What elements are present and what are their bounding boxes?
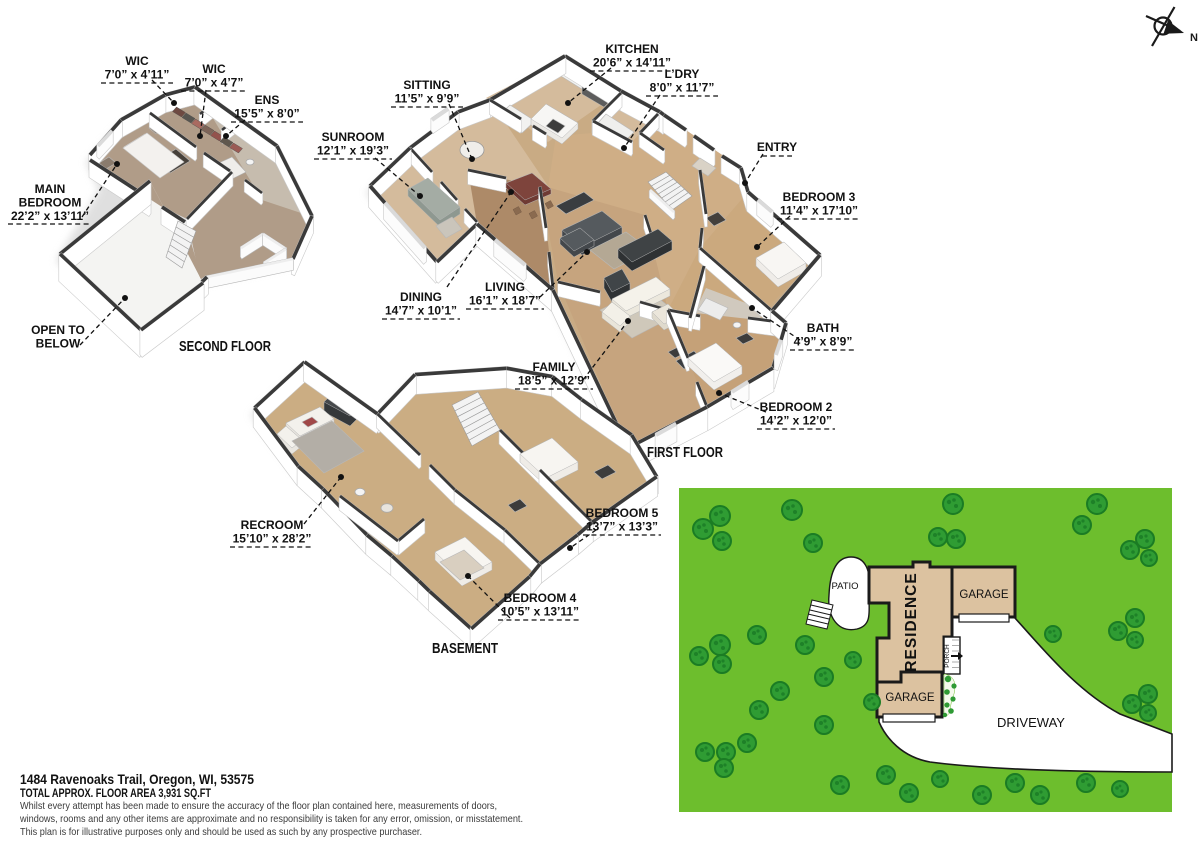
svg-text:7’0” x 4’11”: 7’0” x 4’11” bbox=[105, 67, 170, 81]
svg-text:FIRST FLOOR: FIRST FLOOR bbox=[647, 444, 723, 461]
svg-text:RECROOM: RECROOM bbox=[241, 518, 304, 532]
svg-text:BEDROOM 3: BEDROOM 3 bbox=[783, 190, 856, 204]
svg-text:11’5” x 9’9”: 11’5” x 9’9” bbox=[395, 91, 460, 105]
svg-text:ENS: ENS bbox=[255, 93, 280, 107]
svg-text:ENTRY: ENTRY bbox=[757, 140, 797, 154]
svg-text:13’7” x 13’3”: 13’7” x 13’3” bbox=[586, 519, 658, 533]
svg-text:PATIO: PATIO bbox=[831, 581, 858, 592]
svg-text:BELOW: BELOW bbox=[36, 336, 81, 350]
svg-text:WIC: WIC bbox=[202, 62, 226, 76]
svg-text:7’0” x 4’7”: 7’0” x 4’7” bbox=[185, 75, 244, 89]
svg-text:SECOND FLOOR: SECOND FLOOR bbox=[179, 338, 271, 355]
svg-text:4’9” x 8’9”: 4’9” x 8’9” bbox=[794, 334, 853, 348]
svg-text:FAMILY: FAMILY bbox=[533, 360, 576, 374]
svg-text:BEDROOM 4: BEDROOM 4 bbox=[504, 591, 577, 605]
svg-text:windows, rooms and any other i: windows, rooms and any other items are a… bbox=[19, 813, 523, 825]
svg-text:BEDROOM: BEDROOM bbox=[19, 195, 82, 209]
svg-text:8’0” x 11’7”: 8’0” x 11’7” bbox=[650, 80, 715, 94]
svg-text:BEDROOM 2: BEDROOM 2 bbox=[760, 400, 833, 414]
svg-text:16’1” x 18’7”: 16’1” x 18’7” bbox=[469, 293, 541, 307]
svg-text:10’5” x 13’11”: 10’5” x 13’11” bbox=[501, 604, 579, 618]
svg-text:Whilst every attempt has been: Whilst every attempt has been made to en… bbox=[20, 800, 497, 812]
svg-text:TOTAL APPROX. FLOOR AREA 3,931: TOTAL APPROX. FLOOR AREA 3,931 SQ.FT bbox=[20, 788, 211, 800]
svg-text:DINING: DINING bbox=[400, 290, 442, 304]
svg-text:LIVING: LIVING bbox=[485, 280, 525, 294]
svg-text:OPEN TO: OPEN TO bbox=[31, 323, 85, 337]
svg-text:KITCHEN: KITCHEN bbox=[605, 42, 658, 56]
svg-text:15’10” x 28’2”: 15’10” x 28’2” bbox=[233, 531, 312, 545]
svg-text:14’2” x 12’0”: 14’2” x 12’0” bbox=[760, 413, 832, 427]
svg-text:14’7” x 10’1”: 14’7” x 10’1” bbox=[385, 303, 457, 317]
svg-text:15’5” x 8’0”: 15’5” x 8’0” bbox=[234, 106, 299, 120]
svg-text:N: N bbox=[1190, 32, 1198, 44]
svg-text:11’4” x 17’10”: 11’4” x 17’10” bbox=[780, 203, 858, 217]
svg-text:DRIVEWAY: DRIVEWAY bbox=[997, 715, 1065, 730]
svg-text:SITTING: SITTING bbox=[403, 78, 450, 92]
svg-text:20’6” x 14’11”: 20’6” x 14’11” bbox=[593, 55, 671, 69]
svg-text:18’5” x 12’9”: 18’5” x 12’9” bbox=[518, 373, 590, 387]
svg-text:MAIN: MAIN bbox=[35, 182, 66, 196]
svg-text:This plan is for illustrative: This plan is for illustrative purposes o… bbox=[20, 826, 422, 838]
svg-text:L’DRY: L’DRY bbox=[665, 67, 700, 81]
svg-text:12’1” x 19’3”: 12’1” x 19’3” bbox=[317, 143, 389, 157]
svg-text:22’2” x 13’11”: 22’2” x 13’11” bbox=[11, 209, 89, 223]
svg-text:BEDROOM 5: BEDROOM 5 bbox=[586, 506, 659, 520]
svg-text:1484 Ravenoaks Trail, Oregon,: 1484 Ravenoaks Trail, Oregon, WI, 53575 bbox=[20, 771, 254, 787]
svg-text:BATH: BATH bbox=[807, 321, 839, 335]
svg-text:RESIDENCE: RESIDENCE bbox=[903, 572, 920, 671]
svg-text:BASEMENT: BASEMENT bbox=[432, 640, 498, 657]
svg-text:SUNROOM: SUNROOM bbox=[322, 130, 385, 144]
svg-text:WIC: WIC bbox=[125, 54, 149, 68]
svg-text:GARAGE: GARAGE bbox=[885, 692, 935, 704]
svg-text:GARAGE: GARAGE bbox=[959, 589, 1009, 601]
svg-text:PORCH: PORCH bbox=[944, 644, 951, 668]
